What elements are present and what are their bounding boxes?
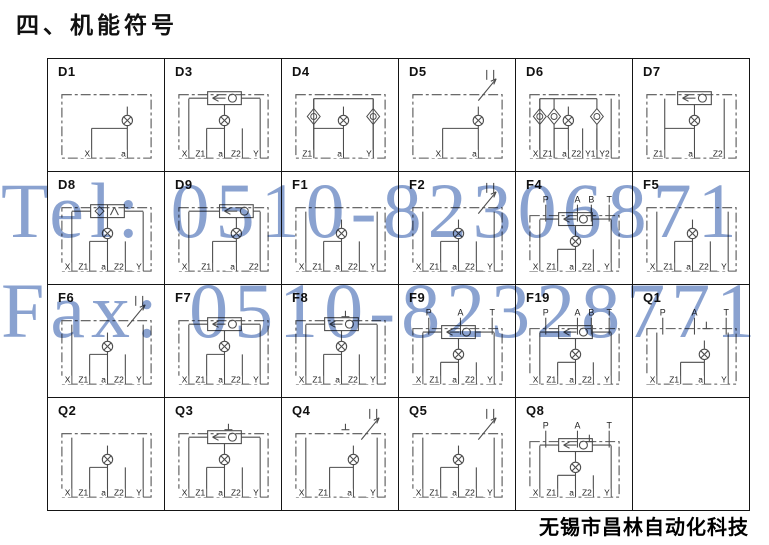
svg-text:Z1: Z1: [669, 375, 679, 385]
svg-text:X: X: [182, 488, 188, 498]
svg-text:Z2: Z2: [465, 488, 475, 498]
svg-text:a: a: [101, 262, 106, 272]
symbol-cell-D9: D9XZ1aZ2: [165, 172, 282, 285]
svg-text:X: X: [416, 262, 422, 272]
svg-text:Z2: Z2: [231, 375, 241, 385]
svg-text:X: X: [299, 262, 305, 272]
cell-id-label: F19: [526, 290, 550, 305]
svg-text:Y: Y: [370, 488, 376, 498]
svg-text:a: a: [686, 262, 691, 272]
svg-text:X: X: [299, 375, 305, 385]
svg-text:Y: Y: [721, 375, 727, 385]
cell-id-label: Q5: [409, 403, 427, 418]
cell-id-label: D8: [58, 177, 76, 192]
svg-text:A: A: [691, 308, 697, 318]
cell-id-label: F2: [409, 177, 425, 192]
svg-text:X: X: [436, 149, 442, 159]
svg-text:Z1: Z1: [312, 375, 322, 385]
svg-text:Z2: Z2: [348, 262, 358, 272]
svg-text:Y: Y: [721, 262, 727, 272]
svg-text:a: a: [230, 262, 235, 272]
svg-text:P: P: [543, 195, 549, 205]
svg-text:B: B: [588, 195, 594, 205]
svg-text:Y: Y: [136, 375, 142, 385]
svg-text:a: a: [335, 375, 340, 385]
svg-text:A: A: [574, 421, 580, 431]
svg-text:Y: Y: [604, 488, 610, 498]
symbol-cell-D3: D3XZ1aZ2Y: [165, 59, 282, 172]
svg-text:X: X: [182, 375, 188, 385]
svg-text:a: a: [218, 488, 223, 498]
svg-text:Z2: Z2: [231, 149, 241, 159]
symbol-cell-Q4: Q4XZ1aY: [282, 398, 399, 511]
cell-id-label: D4: [292, 64, 310, 79]
svg-text:Z1: Z1: [653, 149, 663, 159]
svg-text:X: X: [65, 262, 71, 272]
svg-text:Z1: Z1: [78, 262, 88, 272]
svg-text:Z1: Z1: [663, 262, 673, 272]
svg-text:Y2: Y2: [599, 149, 610, 159]
svg-text:X: X: [182, 262, 188, 272]
svg-text:Z1: Z1: [546, 375, 556, 385]
svg-text:P: P: [426, 308, 432, 318]
svg-text:Y: Y: [370, 375, 376, 385]
svg-text:Y: Y: [136, 262, 142, 272]
svg-text:Z1: Z1: [78, 488, 88, 498]
svg-text:Z1: Z1: [429, 488, 439, 498]
svg-text:Z1: Z1: [201, 262, 211, 272]
symbol-cell-Q3: Q3XZ1aZ2Y: [165, 398, 282, 511]
svg-text:a: a: [569, 375, 574, 385]
document-page: 四、机能符号 D1XaD3XZ1aZ2YD4Z1aYD5XaD6XZ1aZ2Y1…: [0, 0, 769, 545]
svg-text:a: a: [569, 488, 574, 498]
svg-text:Z1: Z1: [78, 375, 88, 385]
svg-text:Z1: Z1: [195, 488, 205, 498]
svg-text:Y: Y: [253, 375, 259, 385]
svg-text:X: X: [533, 488, 539, 498]
symbol-cell-Q1: Q1PATXZ1aY: [633, 285, 750, 398]
cell-id-label: F4: [526, 177, 542, 192]
svg-text:A: A: [574, 308, 580, 318]
cell-id-label: Q8: [526, 403, 544, 418]
symbol-cell-D8: D8XZ1aZ2Y: [48, 172, 165, 285]
company-name: 无锡市昌林自动化科技: [539, 511, 749, 540]
cell-id-label: F5: [643, 177, 659, 192]
symbol-cell-F6: F6XZ1aZ2Y: [48, 285, 165, 398]
svg-text:a: a: [472, 149, 477, 159]
cell-id-label: F7: [175, 290, 191, 305]
svg-text:X: X: [299, 488, 305, 498]
svg-text:Z1: Z1: [546, 488, 556, 498]
svg-text:Z1: Z1: [302, 149, 312, 159]
cell-id-label: F6: [58, 290, 74, 305]
symbol-cell-D7: D7Z1aZ2: [633, 59, 750, 172]
symbol-cell-F19: F19PABTXZ1aZ2Y: [516, 285, 633, 398]
svg-text:P: P: [543, 421, 549, 431]
svg-text:a: a: [218, 149, 223, 159]
svg-text:X: X: [85, 149, 91, 159]
symbol-table: D1XaD3XZ1aZ2YD4Z1aYD5XaD6XZ1aZ2Y1Y2D7Z1a…: [47, 58, 750, 511]
svg-text:X: X: [533, 262, 539, 272]
symbol-cell-D6: D6XZ1aZ2Y1Y2: [516, 59, 633, 172]
svg-text:Y: Y: [253, 149, 259, 159]
svg-text:a: a: [101, 488, 106, 498]
svg-text:Z2: Z2: [249, 262, 259, 272]
svg-text:A: A: [457, 308, 463, 318]
cell-id-label: D9: [175, 177, 193, 192]
svg-text:Z2: Z2: [582, 488, 592, 498]
svg-text:Z1: Z1: [546, 262, 556, 272]
svg-text:X: X: [533, 149, 539, 159]
cell-id-label: D1: [58, 64, 76, 79]
cell-id-label: D3: [175, 64, 193, 79]
svg-text:a: a: [569, 262, 574, 272]
svg-text:Z1: Z1: [312, 262, 322, 272]
cell-id-label: F9: [409, 290, 425, 305]
svg-text:X: X: [650, 262, 656, 272]
svg-text:Y1: Y1: [585, 149, 596, 159]
svg-text:Z2: Z2: [114, 488, 124, 498]
svg-text:Z2: Z2: [582, 262, 592, 272]
svg-text:Y: Y: [487, 375, 493, 385]
svg-text:X: X: [416, 488, 422, 498]
svg-text:P: P: [660, 308, 666, 318]
svg-text:Z1: Z1: [318, 488, 328, 498]
empty-cell: [633, 398, 750, 511]
svg-text:a: a: [347, 488, 352, 498]
svg-text:Y: Y: [253, 488, 259, 498]
svg-text:a: a: [562, 149, 567, 159]
svg-text:T: T: [606, 421, 612, 431]
svg-text:X: X: [533, 375, 539, 385]
svg-text:T: T: [606, 308, 612, 318]
cell-id-label: F1: [292, 177, 308, 192]
symbol-cell-F7: F7XZ1aZ2Y: [165, 285, 282, 398]
svg-text:Z1: Z1: [429, 375, 439, 385]
svg-text:Y: Y: [604, 375, 610, 385]
svg-text:a: a: [337, 149, 342, 159]
svg-text:P: P: [543, 308, 549, 318]
cell-id-label: Q4: [292, 403, 310, 418]
symbol-cell-D4: D4Z1aY: [282, 59, 399, 172]
svg-text:Z2: Z2: [713, 149, 723, 159]
svg-text:a: a: [101, 375, 106, 385]
svg-text:Y: Y: [487, 262, 493, 272]
symbol-cell-Q5: Q5XZ1aZ2Y: [399, 398, 516, 511]
page-title: 四、机能符号: [16, 6, 178, 40]
svg-text:Z2: Z2: [114, 375, 124, 385]
svg-text:Y: Y: [370, 262, 376, 272]
svg-text:a: a: [121, 149, 126, 159]
svg-text:X: X: [65, 375, 71, 385]
svg-text:T: T: [606, 195, 612, 205]
svg-text:a: a: [335, 262, 340, 272]
symbol-cell-Q2: Q2XZ1aZ2Y: [48, 398, 165, 511]
svg-text:Z1: Z1: [195, 149, 205, 159]
symbol-cell-F5: F5XZ1aZ2Y: [633, 172, 750, 285]
svg-text:Y: Y: [366, 149, 372, 159]
svg-text:Y: Y: [487, 488, 493, 498]
svg-text:Z2: Z2: [571, 149, 581, 159]
svg-text:T: T: [723, 308, 729, 318]
svg-text:B: B: [588, 308, 594, 318]
cell-id-label: Q3: [175, 403, 193, 418]
cell-id-label: Q1: [643, 290, 661, 305]
svg-text:a: a: [688, 149, 693, 159]
svg-text:Z2: Z2: [348, 375, 358, 385]
svg-text:X: X: [650, 375, 656, 385]
svg-text:T: T: [489, 308, 495, 318]
svg-text:Z2: Z2: [465, 375, 475, 385]
svg-text:a: a: [698, 375, 703, 385]
svg-text:Z2: Z2: [582, 375, 592, 385]
svg-text:A: A: [574, 195, 580, 205]
svg-text:X: X: [65, 488, 71, 498]
cell-id-label: Q2: [58, 403, 76, 418]
symbol-cell-F1: F1XZ1aZ2Y: [282, 172, 399, 285]
symbol-cell-F4: F4PABTXZ1aZ2Y: [516, 172, 633, 285]
svg-text:X: X: [182, 149, 188, 159]
svg-text:Z2: Z2: [231, 488, 241, 498]
symbol-cell-D1: D1Xa: [48, 59, 165, 172]
svg-text:Z1: Z1: [195, 375, 205, 385]
symbol-cell-Q8: Q8PATXZ1aZ2Y: [516, 398, 633, 511]
svg-text:a: a: [452, 488, 457, 498]
symbol-cell-F2: F2XZ1aZ2Y: [399, 172, 516, 285]
svg-text:Z1: Z1: [543, 149, 553, 159]
symbol-cell-F9: F9PATXZ1aZ2Y: [399, 285, 516, 398]
svg-text:Y: Y: [136, 488, 142, 498]
svg-text:X: X: [416, 375, 422, 385]
cell-id-label: D5: [409, 64, 427, 79]
svg-text:Z1: Z1: [429, 262, 439, 272]
symbol-cell-D5: D5Xa: [399, 59, 516, 172]
symbol-cell-F8: F8XZ1aZ2Y: [282, 285, 399, 398]
svg-text:a: a: [452, 375, 457, 385]
svg-text:Z2: Z2: [699, 262, 709, 272]
svg-text:Y: Y: [604, 262, 610, 272]
cell-id-label: D6: [526, 64, 544, 79]
svg-text:a: a: [218, 375, 223, 385]
svg-text:Z2: Z2: [114, 262, 124, 272]
svg-text:Z2: Z2: [465, 262, 475, 272]
cell-id-label: F8: [292, 290, 308, 305]
cell-id-label: D7: [643, 64, 661, 79]
svg-text:a: a: [452, 262, 457, 272]
